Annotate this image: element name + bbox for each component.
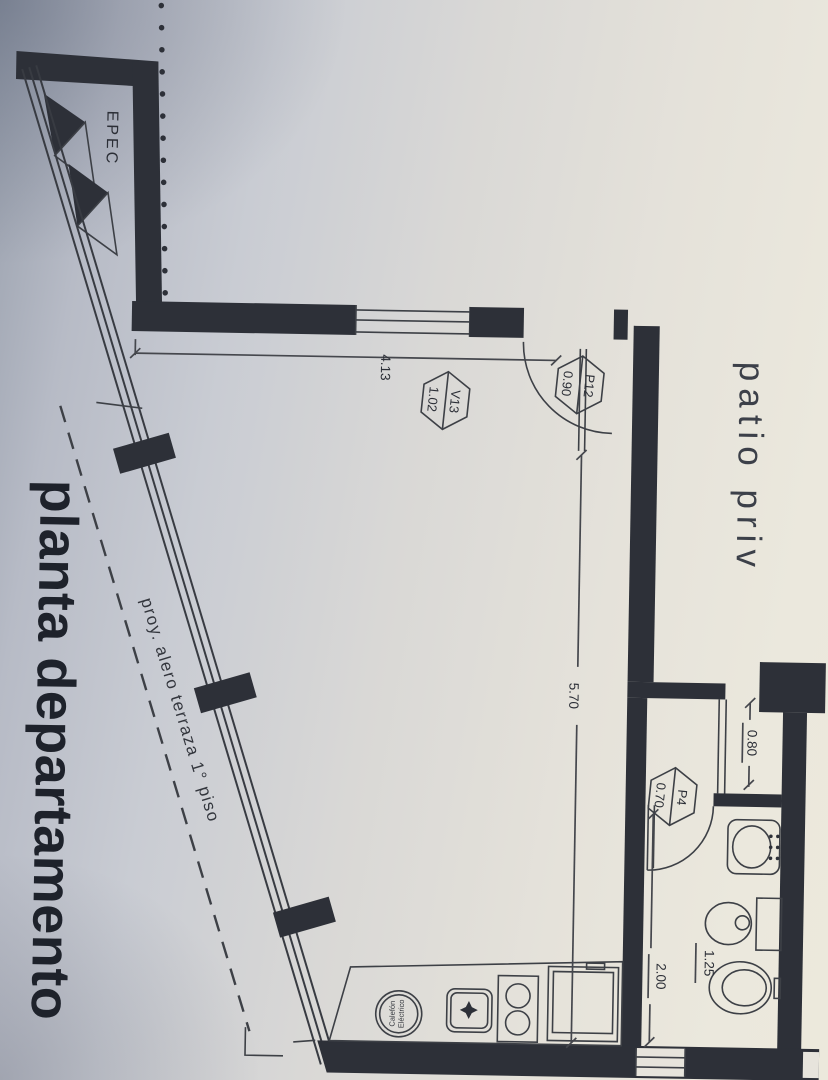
floor-plan-photo: EPEC proy. alero terraza 1° piso [0,0,828,1080]
toilet [705,897,782,950]
bath-door-wall [713,793,781,807]
refrigerator [547,962,618,1041]
dim-bath-length-text: 2.00 [653,963,668,990]
wall-opening [803,1052,819,1078]
sink-double [497,976,538,1043]
dim-bath-width: 1.25 [695,943,717,983]
tag-v13-size: 1.02 [424,386,442,413]
dim-bath-width-text: 1.25 [701,950,716,977]
tag-p4-size: 0.70 [651,782,669,809]
bidet [709,961,781,1014]
patio-wall [628,326,660,682]
door-p12 [522,342,614,452]
cooktop [446,989,492,1033]
bathroom-fixtures [704,819,783,1014]
bath-stub-wall [627,682,725,700]
tag-p4-code: P4 [674,789,691,806]
sheet-title: planta departamento [20,479,89,1021]
dim-bath-passage-text: 0.80 [744,730,759,757]
facade-column [194,672,257,713]
opening-tag-v13: V13 1.02 [420,369,472,431]
water-heater: Calefón Eléctrico [375,990,422,1037]
water-heater-label-2: Eléctrico [396,999,406,1028]
bath-right-wall [777,712,807,1052]
facade-column [113,433,176,474]
bath-left-wall [621,698,647,1050]
washbasin [727,820,780,875]
door-jamb [614,309,629,339]
patio-label: patio priv [728,362,771,575]
tag-v13-code: V13 [446,389,463,414]
epec-right-wall [128,61,166,306]
tag-p12-size: 0.90 [559,370,577,397]
witness-line [96,402,142,408]
burner-star [460,1001,478,1019]
dim-room-width-text: 4.13 [378,354,393,381]
kitchen: Calefón Eléctrico [329,957,622,1046]
louver-vent [636,1048,685,1077]
tag-p12-code: P12 [581,374,598,399]
terrace-overhang: proy. alero terraza 1° piso [49,406,326,1057]
dim-bath-passage: 0.80 [742,698,761,790]
dim-room-length: 5.70 [560,450,586,1048]
water-heater-label-1: Calefón [388,1001,397,1027]
epec-label: EPEC [102,111,120,167]
dim-room-length-text: 5.70 [566,683,581,710]
dim-room-width: 4.13 [130,339,562,384]
patio-bath-corner-wall [759,662,826,713]
window-v13 [356,305,471,337]
facade-column [273,897,336,938]
floor-plan-drawing: EPEC proy. alero terraza 1° piso [0,0,828,1080]
top-wall [132,301,628,340]
